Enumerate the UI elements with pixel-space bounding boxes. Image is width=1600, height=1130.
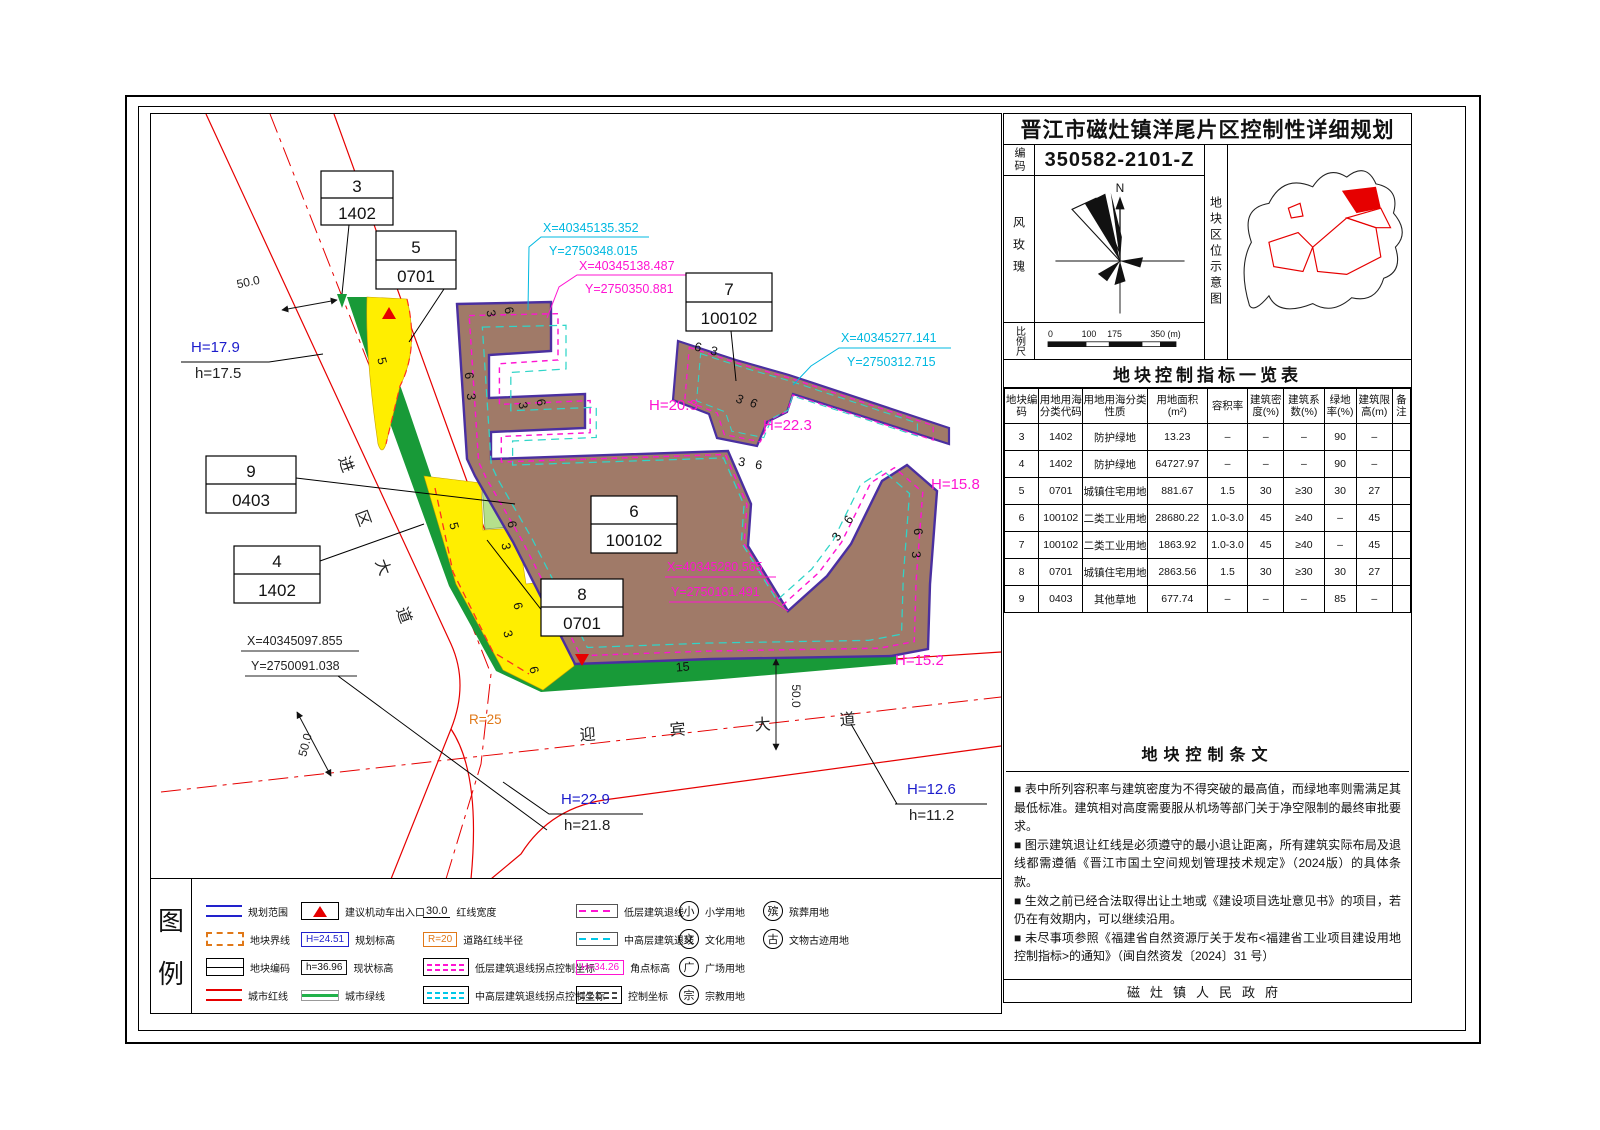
setback-label: 6 (841, 513, 856, 527)
table-cell: 100102 (1039, 532, 1083, 559)
svg-text:X=40345097.855: X=40345097.855 (247, 634, 343, 648)
legend-funeral: 殡 殡葬用地 (763, 901, 829, 921)
svg-text:50.0: 50.0 (235, 273, 261, 292)
table-cell: – (1207, 451, 1247, 478)
svg-text:Y=2750312.715: Y=2750312.715 (847, 355, 936, 369)
spot-height-2: H=22.3 (763, 417, 812, 434)
svg-text:宾: 宾 (669, 720, 686, 739)
table-row: 50701城镇住宅用地881.671.530≥303027 (1005, 478, 1411, 505)
indicator-table: 地块编码 用地用海分类代码 用地用海分类性质 用地面积(m²) 容积率 建筑密度… (1004, 388, 1411, 613)
culture-symbol: 文 (679, 929, 699, 949)
svg-text:8: 8 (577, 585, 586, 604)
table-row: 41402防护绿地64727.97–––90– (1005, 451, 1411, 478)
legend-parcel-code: 地块编码 (206, 957, 290, 977)
spot-height-3: H=15.8 (931, 476, 980, 493)
table-cell: – (1324, 505, 1356, 532)
radius-label: R=25 (469, 712, 502, 727)
legend-mid-setback-line: 中高层建筑退线 (576, 929, 694, 949)
road-name-yingbin: 迎 宾 大 道 (579, 710, 856, 744)
svg-text:道: 道 (839, 710, 856, 729)
scale-bar-diagram: 0 100 175 350 (m) (1040, 326, 1200, 356)
table-cell: 二类工业用地 (1083, 505, 1147, 532)
control-coord-symbol (576, 986, 622, 1004)
provision-item: ■ 图示建筑退让红线是必须遵守的最小退让距离，所有建筑实际布局及退线都需遵循《晋… (1014, 836, 1401, 892)
svg-text:Y=2750091.038: Y=2750091.038 (251, 659, 340, 673)
issuing-authority: 磁灶镇人民政府 (1004, 979, 1411, 1002)
wind-rose-diagram: N (1037, 178, 1203, 320)
elevation-south: H=22.9 h=21.8 (503, 782, 643, 834)
provisions-body: ■ 表中所列容积率与建筑密度为不得突破的最高值，而绿地率则需满足其最低标准。建筑… (1004, 772, 1411, 974)
legend-city-redline: 城市红线 (206, 985, 288, 1005)
legend-road-radius: R=20 道路红线半径 (423, 929, 523, 949)
square-symbol: 广 (679, 957, 699, 977)
svg-text:X=40345135.352: X=40345135.352 (543, 221, 639, 235)
indicator-table-title: 地块控制指标一览表 (1004, 360, 1411, 388)
wind-rose: N (1035, 176, 1204, 322)
parcel-label-6[interactable]: 6100102 (591, 496, 677, 553)
svg-text:50.0: 50.0 (789, 684, 803, 708)
provision-item: ■ 生效之前已经合法取得出让土地或《建设项目选址意见书》的项目，若仍在有效期内，… (1014, 892, 1401, 929)
svg-text:175: 175 (1107, 329, 1122, 339)
table-cell: 30 (1324, 559, 1356, 586)
table-cell: – (1324, 532, 1356, 559)
table-cell: 45 (1248, 532, 1284, 559)
table-cell: 100102 (1039, 505, 1083, 532)
table-row: 6100102二类工业用地28680.221.0-3.045≥40–45 (1005, 505, 1411, 532)
svg-text:0701: 0701 (397, 267, 435, 286)
table-cell: 二类工业用地 (1083, 532, 1147, 559)
legend-char-1: 图 (158, 901, 184, 938)
location-map-diagram (1230, 149, 1410, 355)
parcel-label-4[interactable]: 41402 (234, 524, 424, 603)
elevation-west: H=17.9 h=17.5 (181, 339, 323, 382)
svg-text:X=40345280.565: X=40345280.565 (667, 560, 763, 574)
north-label: N (1115, 181, 1124, 195)
entrance-symbol (301, 902, 339, 920)
setback-label: 6 (754, 458, 763, 473)
legend-redline-width: 30.0 红线宽度 (423, 901, 496, 921)
svg-text:0: 0 (1048, 329, 1053, 339)
table-cell: 4 (1005, 451, 1039, 478)
legend-plan-boundary: 规划范围 (206, 901, 288, 921)
table-cell: 64727.97 (1147, 451, 1207, 478)
svg-text:100102: 100102 (606, 531, 663, 550)
plan-sheet: 3663363663636363556363615 进 区 大 道 迎 宾 大 … (0, 0, 1600, 1130)
table-cell: 27 (1356, 559, 1392, 586)
svg-text:区: 区 (352, 508, 373, 529)
table-cell: ≥40 (1284, 505, 1324, 532)
coord-callout-2: X=40345138.487 Y=2750350.881 (547, 259, 691, 318)
table-cell: 9 (1005, 586, 1039, 613)
table-cell (1392, 424, 1410, 451)
svg-text:h=21.8: h=21.8 (564, 817, 610, 834)
legend-city-greenline: 城市绿线 (301, 985, 385, 1005)
elevation-east: H=12.6 h=11.2 (851, 724, 987, 824)
provision-item: ■ 表中所列容积率与建筑密度为不得突破的最高值，而绿地率则需满足其最低标准。建筑… (1014, 780, 1401, 836)
info-panel: 晋江市磁灶镇洋尾片区控制性详细规划 编码 350582-2101-Z 风玫瑰 (1003, 113, 1412, 1003)
map-panel: 3663363663636363556363615 进 区 大 道 迎 宾 大 … (150, 113, 1002, 880)
setback-label: 6 (911, 528, 926, 536)
table-cell: 27 (1356, 478, 1392, 505)
table-cell: 0403 (1039, 586, 1083, 613)
svg-text:0701: 0701 (563, 614, 601, 633)
svg-text:7: 7 (724, 280, 733, 299)
svg-text:H=17.9: H=17.9 (191, 339, 240, 356)
table-cell: 2863.56 (1147, 559, 1207, 586)
table-cell (1392, 451, 1410, 478)
svg-text:Y=2750350.881: Y=2750350.881 (585, 282, 674, 296)
religion-symbol: 宗 (679, 985, 699, 1005)
city-redline-symbol (206, 989, 242, 1001)
svg-text:h=17.5: h=17.5 (195, 365, 241, 382)
legend-corner-elev: H=34.26 角点标高 (576, 957, 670, 977)
redline-width-symbol: 30.0 (423, 905, 450, 918)
svg-text:1402: 1402 (338, 204, 376, 223)
legend-heritage: 古 文物古迹用地 (763, 929, 849, 949)
planned-elev-symbol: H=24.51 (301, 932, 349, 947)
plan-code: 350582-2101-Z (1035, 145, 1204, 175)
legend-low-setback-line: 低层建筑退线 (576, 901, 684, 921)
table-cell: – (1207, 586, 1247, 613)
table-cell: 5 (1005, 478, 1039, 505)
legend-culture: 文 文化用地 (679, 929, 745, 949)
indicator-table-body: 31402防护绿地13.23–––90–41402防护绿地64727.97–––… (1005, 424, 1411, 613)
legend-parcel-boundary: 地块界线 (206, 929, 290, 949)
sheet-title: 晋江市磁灶镇洋尾片区控制性详细规划 (1004, 114, 1411, 145)
svg-text:0403: 0403 (232, 491, 270, 510)
table-cell: 28680.22 (1147, 505, 1207, 532)
table-cell: 城镇住宅用地 (1083, 559, 1147, 586)
table-cell: 1863.92 (1147, 532, 1207, 559)
spot-height-4: H=15.2 (895, 652, 944, 669)
setback-label: 3 (909, 551, 924, 559)
scale-label: 比例尺 (1004, 323, 1035, 359)
mid-setback-line-symbol (576, 932, 618, 946)
svg-text:Y=2750181.491: Y=2750181.491 (671, 585, 760, 599)
table-cell: – (1356, 451, 1392, 478)
legend-primary-school: 小 小学用地 (679, 901, 745, 921)
table-header-row: 地块编码 用地用海分类代码 用地用海分类性质 用地面积(m²) 容积率 建筑密度… (1005, 389, 1411, 424)
table-cell: – (1284, 451, 1324, 478)
parcel-code-symbol (206, 958, 244, 976)
table-cell: – (1248, 586, 1284, 613)
legend-control-coord: 控制坐标 (576, 985, 668, 1005)
corner-elev-symbol: H=34.26 (576, 960, 624, 975)
svg-text:9: 9 (246, 462, 255, 481)
svg-text:1402: 1402 (258, 581, 296, 600)
table-cell: 30 (1248, 559, 1284, 586)
svg-text:进: 进 (335, 454, 357, 475)
table-cell (1392, 532, 1410, 559)
funeral-symbol: 殡 (763, 901, 783, 921)
table-cell: 0701 (1039, 559, 1083, 586)
table-cell: 13.23 (1147, 424, 1207, 451)
svg-text:X=40345277.141: X=40345277.141 (841, 331, 937, 345)
legend-religion: 宗 宗教用地 (679, 985, 745, 1005)
code-label: 编码 (1004, 145, 1035, 175)
table-cell: – (1248, 451, 1284, 478)
table-row: 7100102二类工业用地1863.921.0-3.045≥40–45 (1005, 532, 1411, 559)
table-cell (1392, 559, 1410, 586)
setback-label: 3 (464, 393, 479, 401)
svg-text:6: 6 (629, 502, 638, 521)
table-cell: 30 (1248, 478, 1284, 505)
svg-text:X=40345138.487: X=40345138.487 (579, 259, 675, 273)
coord-callout-3: X=40345277.141 Y=2750312.715 (793, 331, 951, 385)
legend-entrance: 建议机动车出入口 (301, 901, 425, 921)
svg-text:道: 道 (393, 605, 415, 626)
table-cell: 1.0-3.0 (1207, 532, 1247, 559)
table-cell: 45 (1248, 505, 1284, 532)
plan-map[interactable]: 3663363663636363556363615 进 区 大 道 迎 宾 大 … (151, 114, 1001, 879)
city-greenline-symbol (301, 990, 339, 1001)
svg-text:50.0: 50.0 (295, 732, 315, 758)
table-cell: – (1284, 424, 1324, 451)
road-radius-symbol: R=20 (423, 932, 457, 947)
table-cell: – (1356, 424, 1392, 451)
provisions-title: 地块控制条文 (1006, 741, 1409, 772)
table-cell: 1.0-3.0 (1207, 505, 1247, 532)
heritage-symbol: 古 (763, 929, 783, 949)
svg-text:大: 大 (754, 715, 771, 734)
table-cell: ≥40 (1284, 532, 1324, 559)
location-map-label: 地块区位示意图 (1205, 145, 1228, 359)
table-cell: 1.5 (1207, 559, 1247, 586)
table-cell (1392, 505, 1410, 532)
table-row: 80701城镇住宅用地2863.561.530≥303027 (1005, 559, 1411, 586)
table-row: 31402防护绿地13.23–––90– (1005, 424, 1411, 451)
table-cell: 677.74 (1147, 586, 1207, 613)
table-cell: 7 (1005, 532, 1039, 559)
table-cell: 30 (1324, 478, 1356, 505)
table-cell: ≥30 (1284, 559, 1324, 586)
table-cell (1392, 586, 1410, 613)
table-cell: – (1207, 424, 1247, 451)
table-cell: 8 (1005, 559, 1039, 586)
table-cell: 城镇住宅用地 (1083, 478, 1147, 505)
wind-rose-label: 风玫瑰 (1004, 176, 1035, 322)
svg-text:H=22.9: H=22.9 (561, 791, 610, 808)
table-cell: 其他草地 (1083, 586, 1147, 613)
svg-text:H=12.6: H=12.6 (907, 781, 956, 798)
spot-height-1: H=20.3 (649, 397, 698, 414)
table-cell: 6 (1005, 505, 1039, 532)
table-cell: 防护绿地 (1083, 451, 1147, 478)
dimension-50-left-road: 50.0 (295, 712, 331, 776)
legend-planned-elev: H=24.51 规划标高 (301, 929, 395, 949)
table-cell: 1402 (1039, 451, 1083, 478)
legend-title: 图 例 (151, 879, 192, 1013)
table-cell: – (1356, 586, 1392, 613)
plan-boundary-symbol (206, 905, 242, 917)
setback-label: 6 (462, 372, 477, 380)
svg-text:h=11.2: h=11.2 (909, 807, 954, 824)
location-map (1228, 145, 1411, 359)
table-cell: 45 (1356, 505, 1392, 532)
scale-bar: 0 100 175 350 (m) (1035, 323, 1204, 359)
primary-school-symbol: 小 (679, 901, 699, 921)
svg-text:Y=2750348.015: Y=2750348.015 (549, 244, 638, 258)
table-cell: 防护绿地 (1083, 424, 1147, 451)
svg-text:350 (m): 350 (m) (1150, 329, 1180, 339)
table-cell: 1402 (1039, 424, 1083, 451)
setback-label: 15 (675, 659, 690, 674)
svg-text:3: 3 (352, 177, 361, 196)
svg-text:大: 大 (372, 557, 394, 578)
dimension-50-top: 50.0 (235, 273, 337, 310)
mid-setback-coord-symbol (423, 986, 469, 1004)
legend-existing-elev: h=36.96 现状标高 (301, 957, 393, 977)
table-cell: – (1248, 424, 1284, 451)
table-cell: 90 (1324, 424, 1356, 451)
table-cell: 1.5 (1207, 478, 1247, 505)
low-setback-line-symbol (576, 904, 618, 918)
parcel-boundary-symbol (206, 932, 244, 946)
provisions-section: 地块控制条文 ■ 表中所列容积率与建筑密度为不得突破的最高值，而绿地率则需满足其… (1004, 613, 1411, 979)
svg-text:100102: 100102 (701, 309, 758, 328)
legend-square: 广 广场用地 (679, 957, 745, 977)
table-cell: 881.67 (1147, 478, 1207, 505)
legend-low-setback-coord: 低层建筑退线拐点控制坐标 (423, 957, 595, 977)
setback-label: 3 (737, 455, 746, 470)
table-cell (1392, 478, 1410, 505)
table-cell: 85 (1324, 586, 1356, 613)
existing-elev-symbol: h=36.96 (301, 960, 347, 975)
svg-text:迎: 迎 (579, 725, 596, 744)
legend-panel: 图 例 规划范围 地块界线 地块编码 城市红线 建议机动车出入口 H=24.51… (150, 878, 1002, 1014)
provision-item: ■ 未尽事项参照《福建省自然资源厅关于发布<福建省工业项目建设用地控制指标>的通… (1014, 929, 1401, 966)
table-row: 90403其他草地677.74–––85– (1005, 586, 1411, 613)
table-cell: ≥30 (1284, 478, 1324, 505)
svg-text:100: 100 (1081, 329, 1096, 339)
table-cell: – (1284, 586, 1324, 613)
svg-text:4: 4 (272, 552, 281, 571)
table-cell: 90 (1324, 451, 1356, 478)
table-cell: 3 (1005, 424, 1039, 451)
table-cell: 45 (1356, 532, 1392, 559)
svg-text:5: 5 (411, 238, 420, 257)
legend-char-2: 例 (158, 954, 184, 991)
low-setback-coord-symbol (423, 958, 469, 976)
table-cell: 0701 (1039, 478, 1083, 505)
